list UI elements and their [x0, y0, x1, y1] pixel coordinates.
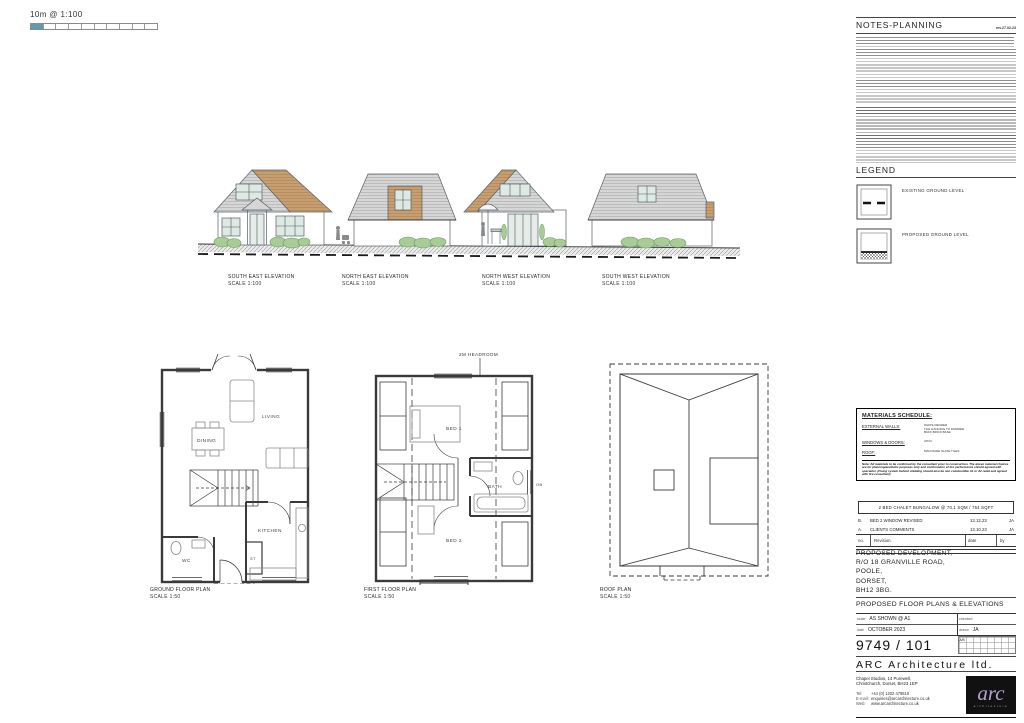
- notes-header: NOTES-PLANNING rev.27.02.23: [856, 20, 1016, 30]
- obscure-glazing-label: OB: [536, 482, 543, 487]
- bath-label: BATH: [488, 484, 502, 490]
- materials-schedule: MATERIALS SCHEDULE: EXTERNAL WALLS: WHIT…: [856, 408, 1016, 481]
- drawing-title: PROPOSED FLOOR PLANS & ELEVATIONS: [856, 601, 1016, 608]
- roof-plan: [598, 352, 778, 586]
- first-floor-plan: 2M HEADROOM: [362, 346, 547, 586]
- materials-title: MATERIALS SCHEDULE:: [862, 413, 1010, 419]
- caption-roof-plan: ROOF PLAN SCALE 1:50: [600, 587, 632, 600]
- revision-block: 2 BED CHALET BUNGALOW @ 70.1 SQM / 754 S…: [856, 501, 1016, 554]
- date-cell: date OCTOBER 2023: [856, 625, 958, 635]
- caption-north-east-elevation: NORTH EAST ELEVATION SCALE 1:100: [342, 274, 409, 287]
- bushes: [399, 237, 446, 248]
- project-address: PROPOSED DEVELOPMENT, R/O 18 GRANVILLE R…: [856, 549, 1016, 595]
- bed2-label: BED 2: [446, 538, 462, 544]
- caption-north-west-elevation: NORTH WEST ELEVATION SCALE 1:100: [482, 274, 550, 287]
- north-east-elevation: [348, 174, 456, 248]
- legend: EXISTING GROUND LEVEL PROPOSED GROUND LE…: [856, 184, 1016, 272]
- scale-bar: [30, 23, 158, 30]
- materials-row: EXTERNAL WALLS: WHITE RENDER TILE HANGIN…: [862, 424, 1010, 435]
- materials-row: ROOF: MAN MADE SLATE TILES: [862, 450, 1010, 455]
- store-label: ST: [250, 556, 256, 561]
- south-west-elevation: [588, 174, 714, 248]
- drawing-number: 9749 / 101: [856, 637, 958, 653]
- materials-row: WINDOWS & DOORS: UPVC: [862, 440, 1010, 445]
- wc-label: WC: [182, 558, 191, 564]
- company-address: Chapel Studios, 14 Purewell, Christchurc…: [856, 676, 930, 687]
- scale-cell: scale AS SHOWN @ A1: [856, 614, 958, 625]
- legend-existing: EXISTING GROUND LEVEL: [856, 184, 1016, 220]
- drawing-sheet: 10m @ 1:100: [0, 0, 1024, 723]
- caption-first-floor-plan: FIRST FLOOR PLAN SCALE 1:50: [364, 587, 416, 600]
- revision-row: A. CLIENTS COMMENTS 13.10.23 JA: [856, 525, 1016, 534]
- dining-label: DINING: [197, 438, 216, 444]
- legend-proposed: PROPOSED GROUND LEVEL: [856, 228, 1016, 264]
- caption-south-east-elevation: SOUTH EAST ELEVATION SCALE 1:100: [228, 274, 295, 287]
- materials-note: Note: All materials to be confirmed by t…: [862, 460, 1010, 477]
- job-summary: 2 BED CHALET BUNGALOW @ 70.1 SQM / 754 S…: [858, 501, 1014, 514]
- south-east-elevation: [214, 170, 332, 248]
- web-row: Web: www.arcarchitecture.co.uk: [856, 701, 930, 706]
- headroom-annotation: 2M HEADROOM: [459, 352, 498, 357]
- proposed-ground-symbol: [856, 228, 892, 264]
- existing-ground-symbol: [856, 184, 892, 220]
- revision-header: no. Revision. date by: [856, 534, 1016, 547]
- north-west-elevation: [464, 170, 566, 247]
- legend-title: LEGEND: [856, 165, 1016, 175]
- meta-table: scale AS SHOWN @ A1 checked date OCTOBER…: [856, 613, 1016, 636]
- ground-floor-plan: LIVING DINING KITCHEN WC ST: [150, 352, 320, 584]
- checked-cell: checked: [958, 614, 1016, 625]
- revision-row: B. BED 2 WINDOW REVISED 13.12.23 JA: [856, 516, 1016, 525]
- revision-grid: A/B: [958, 636, 1016, 654]
- elevations-drawing: [192, 158, 748, 270]
- arc-logo: arc architecture: [966, 676, 1016, 714]
- notes-revision: rev.27.02.23: [996, 26, 1016, 30]
- living-label: LIVING: [262, 414, 280, 420]
- drawn-cell: drawn JA: [958, 625, 1016, 635]
- number-row: 9749 / 101 A/B: [856, 635, 1016, 655]
- person-figure: [336, 226, 350, 244]
- notes-title: NOTES-PLANNING: [856, 20, 943, 30]
- caption-south-west-elevation: SOUTH WEST ELEVATION SCALE 1:100: [602, 274, 670, 287]
- scale-bar-label: 10m @ 1:100: [30, 10, 83, 19]
- notes-top-rule: [856, 17, 1016, 18]
- caption-ground-floor-plan: GROUND FLOOR PLAN SCALE 1:50: [150, 587, 210, 600]
- kitchen-label: KITCHEN: [258, 528, 282, 534]
- bed1-label: BED 1: [446, 426, 462, 432]
- address-block: Chapel Studios, 14 Purewell, Christchurc…: [856, 676, 1016, 718]
- notes-body: [856, 37, 1016, 163]
